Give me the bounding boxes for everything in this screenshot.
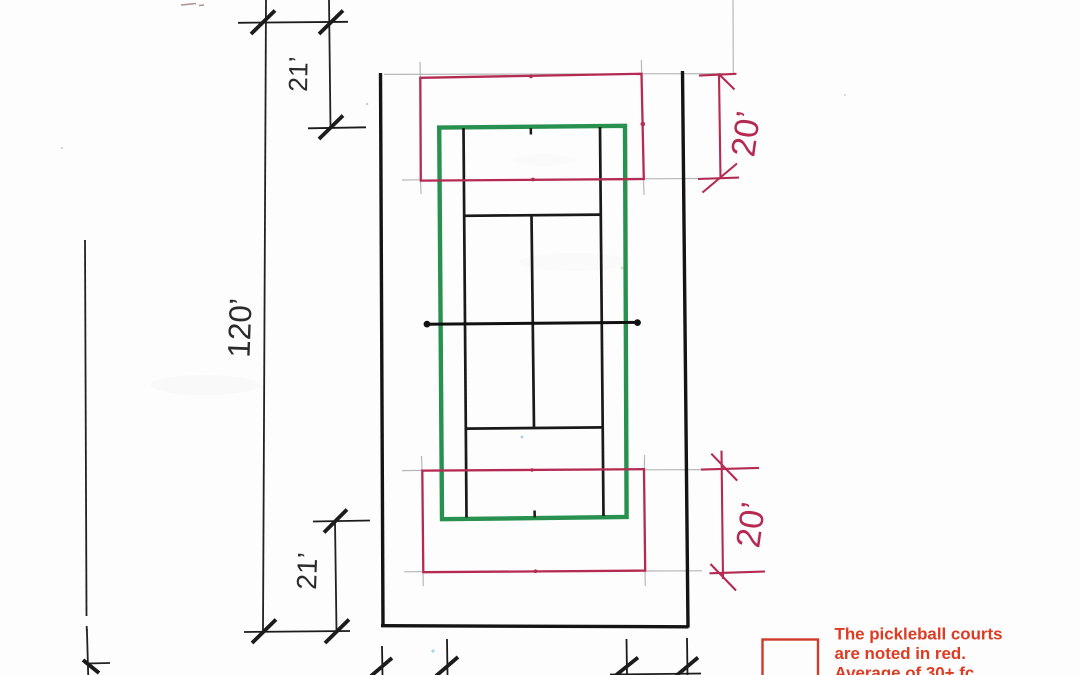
svg-text:21’: 21’ xyxy=(291,552,323,590)
svg-text:20’: 20’ xyxy=(724,109,768,159)
svg-text:120’: 120’ xyxy=(221,297,259,358)
svg-text:The pickleball courts: The pickleball courts xyxy=(835,625,1003,644)
svg-text:20’: 20’ xyxy=(729,500,773,550)
svg-text:Average of 30+ fc: Average of 30+ fc xyxy=(835,664,975,675)
svg-text:21’: 21’ xyxy=(283,56,314,92)
svg-text:are noted in red.: are noted in red. xyxy=(835,644,966,663)
